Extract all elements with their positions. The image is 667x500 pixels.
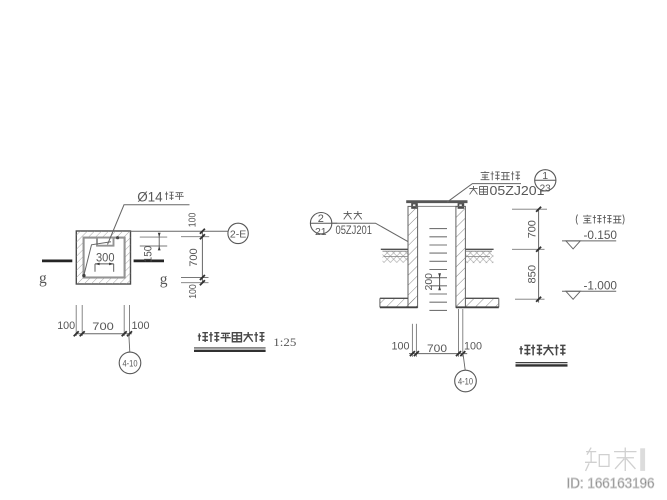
- svg-text:100: 100: [57, 320, 75, 332]
- svg-text:100: 100: [392, 340, 410, 352]
- svg-text:100: 100: [464, 340, 482, 352]
- svg-text:200: 200: [423, 273, 435, 291]
- svg-text:-0.150: -0.150: [584, 228, 618, 242]
- svg-text:23: 23: [540, 184, 552, 195]
- svg-text:g: g: [160, 271, 168, 288]
- svg-text:850: 850: [527, 265, 539, 284]
- svg-text:700: 700: [188, 248, 200, 267]
- svg-text:05ZJ201: 05ZJ201: [336, 225, 373, 237]
- svg-text:700: 700: [92, 321, 114, 333]
- svg-text:4-10: 4-10: [123, 359, 138, 370]
- svg-text:150: 150: [142, 246, 154, 263]
- svg-text:300: 300: [96, 252, 115, 264]
- svg-text:Ø14: Ø14: [137, 189, 163, 204]
- svg-text:21: 21: [315, 226, 327, 238]
- svg-text:1:25: 1:25: [273, 337, 296, 349]
- svg-text:ID: 166163196: ID: 166163196: [567, 475, 655, 492]
- svg-text:100: 100: [132, 320, 150, 332]
- svg-text:2-E: 2-E: [230, 228, 246, 240]
- svg-text:g: g: [39, 270, 47, 287]
- svg-text:4-10: 4-10: [458, 377, 473, 388]
- svg-text:700: 700: [527, 220, 539, 238]
- svg-text:2: 2: [318, 213, 324, 225]
- svg-text:100: 100: [187, 213, 199, 228]
- svg-text:100: 100: [187, 284, 199, 299]
- svg-text:1: 1: [542, 170, 548, 182]
- svg-text:700: 700: [427, 343, 447, 355]
- svg-text:-1.000: -1.000: [584, 278, 618, 292]
